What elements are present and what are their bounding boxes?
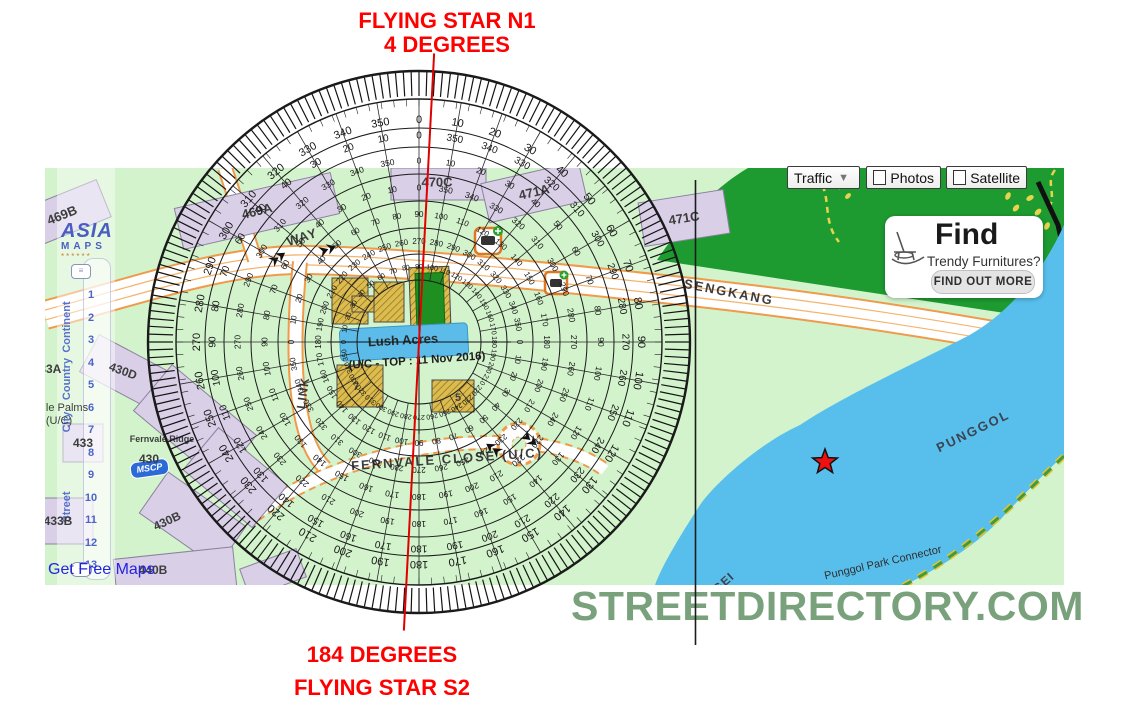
annotation-top-line2: 4 DEGREES	[384, 32, 510, 58]
compass-degree-label: 0	[417, 155, 422, 165]
zoom-level-4[interactable]: 4	[88, 357, 94, 369]
transit-station-icon	[545, 271, 569, 295]
satellite-toggle[interactable]: Satellite	[946, 166, 1027, 189]
map-label-bldg-433B: 433B	[45, 514, 72, 528]
map-label-lbl-le-palms-uc: (U/C)	[46, 415, 72, 427]
zoom-level-11[interactable]: 11	[85, 514, 97, 526]
zoom-level-6[interactable]: 6	[88, 402, 94, 414]
annotation-bottom-line1: 184 DEGREES	[307, 642, 457, 668]
compass-degree-label: 30	[522, 141, 539, 158]
logo-line1: ASIA	[61, 220, 113, 243]
road-link-band	[295, 262, 325, 468]
compass-degree-label: 0	[416, 114, 422, 126]
satellite-checkbox[interactable]	[953, 170, 966, 185]
photos-label: Photos	[890, 170, 934, 186]
screenshot-stage: FLYING STAR N1 4 DEGREES 184 DEGREES FLY…	[0, 0, 1126, 706]
annotation-bottom-line2: FLYING STAR S2	[294, 675, 470, 701]
get-free-maps-link[interactable]: Get Free Maps	[48, 561, 155, 579]
zoom-level-7[interactable]: 7	[88, 424, 94, 436]
buildings	[45, 168, 730, 585]
compass-degree-label: 340	[480, 141, 500, 157]
map-label-lbl-le-palms: le Palms	[46, 402, 88, 414]
compass-degree-label: 350	[370, 116, 390, 131]
transit-station-icon	[475, 226, 503, 254]
traffic-label: Traffic	[794, 170, 832, 186]
map-label-bldg-470C: 470C	[421, 175, 452, 190]
zoom-level-5[interactable]: 5	[88, 379, 94, 391]
map-label-block-5: 5	[455, 392, 461, 404]
scale-word: Country	[61, 358, 73, 400]
zoom-slider-handle[interactable]: ≡	[71, 264, 91, 279]
scale-word: Continent	[61, 301, 73, 352]
zoom-level-8[interactable]: 8	[88, 447, 94, 459]
asia-maps-logo: ASIA MAPS ******	[61, 220, 113, 261]
map-label-bldg-fernvale-ridge: Fernvale Ridge	[130, 434, 195, 444]
logo-stars: ******	[61, 252, 113, 261]
photos-checkbox[interactable]	[873, 170, 886, 185]
zoom-level-12[interactable]: 12	[85, 537, 97, 549]
zoom-slider[interactable]	[83, 258, 111, 580]
compass-degree-label: 10	[377, 133, 390, 146]
compass-degree-label: 0	[416, 131, 422, 142]
zoom-level-2[interactable]: 2	[88, 312, 94, 324]
find-out-more-button[interactable]: FIND OUT MORE	[931, 270, 1035, 294]
chevron-down-icon: ▼	[838, 172, 849, 184]
compass-degree-label: 10	[450, 116, 464, 130]
watermark: STREETDIRECTORY.COM	[571, 583, 1084, 630]
logo-line2: MAPS	[61, 241, 113, 252]
photos-toggle[interactable]: Photos	[866, 166, 941, 189]
ad-subtitle: Trendy Furnitures?	[927, 254, 1041, 269]
compass-degree-label: 330	[297, 140, 319, 160]
compass-degree-label: 20	[487, 126, 503, 141]
satellite-label: Satellite	[970, 170, 1020, 186]
compass-degree-label: 350	[446, 132, 465, 146]
zoom-level-9[interactable]: 9	[88, 469, 94, 481]
annotation-top-line1: FLYING STAR N1	[358, 8, 535, 34]
zoom-level-1[interactable]: 1	[88, 289, 94, 301]
compass-degree-label: 20	[341, 141, 356, 155]
map-label-bldg-433A: 433A	[45, 362, 61, 376]
zoom-level-3[interactable]: 3	[88, 334, 94, 346]
rocking-chair-icon	[890, 230, 928, 272]
compass-degree-label: 340	[332, 125, 353, 143]
map-label-bldg-430: 430	[139, 452, 159, 466]
map-label-block-7: 7	[353, 381, 359, 393]
ad-title: Find	[935, 218, 998, 252]
ad-card[interactable]: Find Trendy Furnitures? FIND OUT MORE	[885, 216, 1043, 298]
traffic-dropdown[interactable]: Traffic ▼	[787, 166, 860, 189]
zoom-level-10[interactable]: 10	[85, 492, 97, 504]
